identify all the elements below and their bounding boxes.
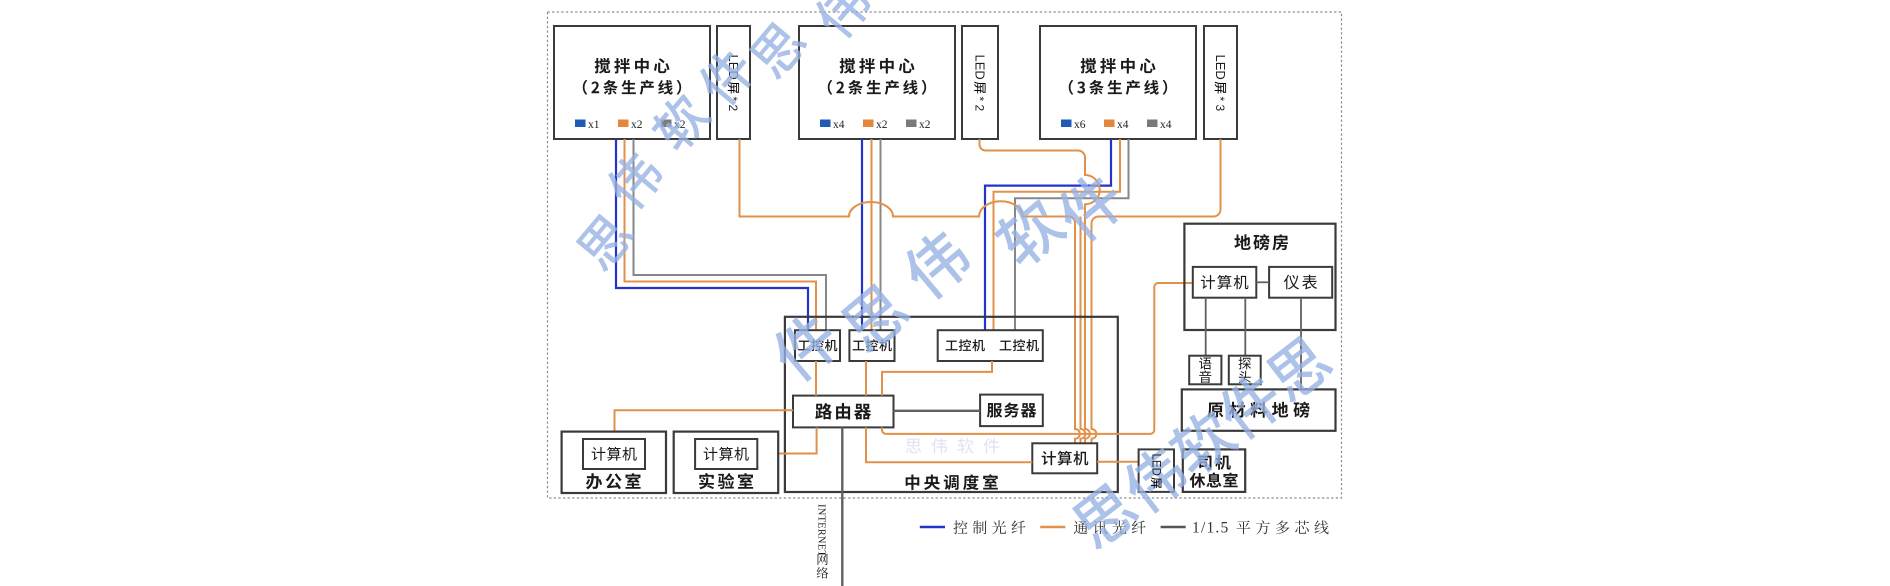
svg-text:x2: x2 [876, 119, 888, 131]
svg-text:* 2: * 2 [973, 97, 987, 112]
svg-text:x4: x4 [1160, 119, 1172, 131]
svg-text:LED: LED [1213, 55, 1228, 80]
svg-text:* 3: * 3 [1213, 97, 1227, 112]
svg-text:x6: x6 [1074, 119, 1086, 131]
svg-text:x2: x2 [919, 119, 931, 131]
svg-text:x4: x4 [1117, 119, 1129, 131]
svg-text:LED: LED [973, 55, 988, 80]
svg-text:INTERNET: INTERNET [816, 504, 827, 557]
svg-text:x2: x2 [631, 119, 643, 131]
svg-text:x1: x1 [588, 119, 600, 131]
svg-text:LED: LED [1149, 454, 1161, 476]
svg-text:x4: x4 [833, 119, 845, 131]
svg-text:1/1.5: 1/1.5 [1192, 520, 1229, 537]
